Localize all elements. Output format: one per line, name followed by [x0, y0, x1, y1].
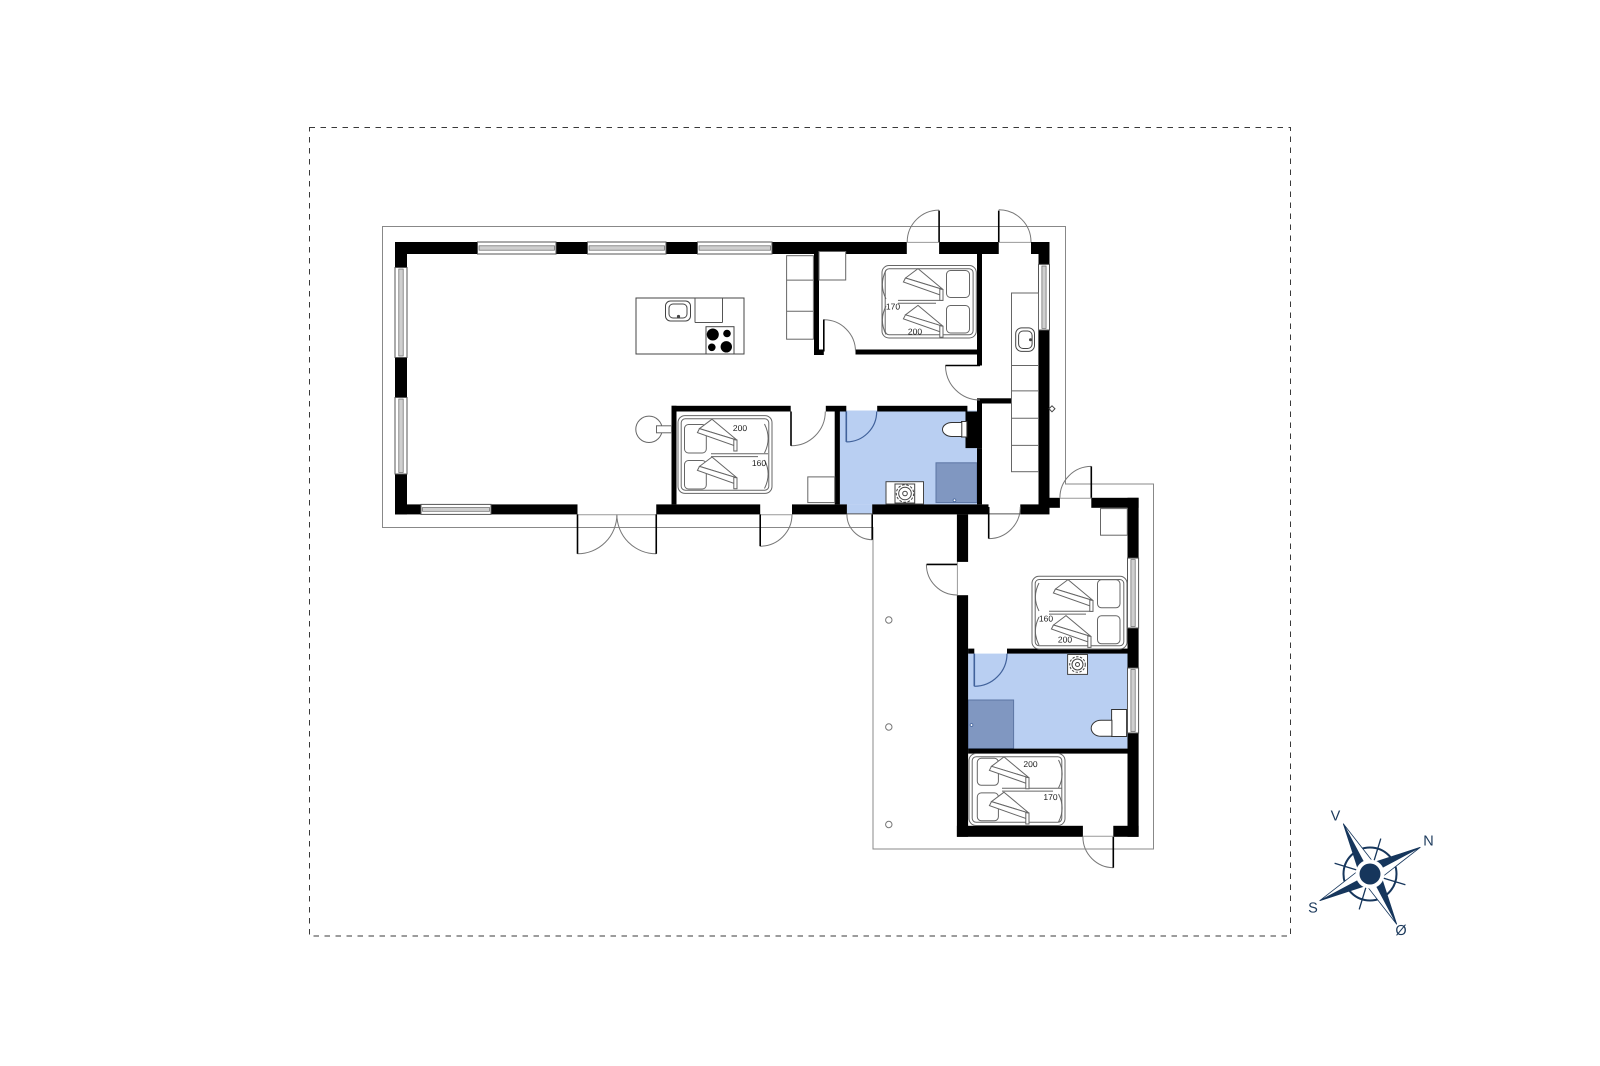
svg-text:200: 200 — [733, 423, 747, 433]
svg-text:200: 200 — [1058, 635, 1072, 645]
svg-text:160: 160 — [1039, 614, 1053, 624]
svg-text:200: 200 — [908, 327, 922, 337]
svg-text:170: 170 — [886, 302, 900, 312]
svg-text:200: 200 — [1023, 759, 1037, 769]
svg-text:170: 170 — [1043, 792, 1057, 802]
svg-text:160: 160 — [752, 458, 766, 468]
svg-text:Ø: Ø — [1395, 923, 1406, 939]
svg-text:S: S — [1308, 901, 1318, 917]
svg-text:N: N — [1423, 834, 1433, 850]
svg-text:V: V — [1331, 809, 1341, 825]
